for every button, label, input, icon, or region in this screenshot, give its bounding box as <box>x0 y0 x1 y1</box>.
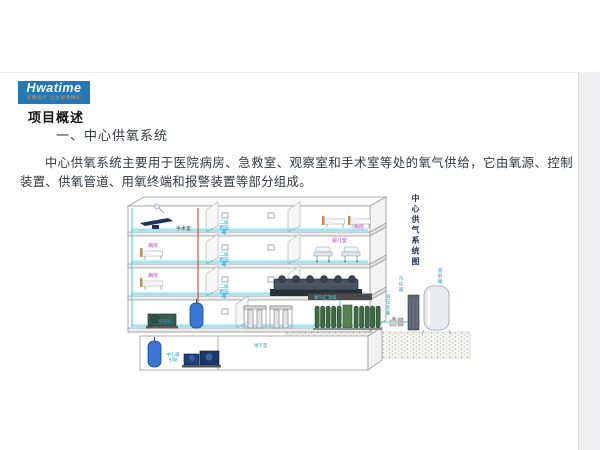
app-background-strip <box>578 72 600 450</box>
logo-tagline: 华腾医疗 让生命更精彩 <box>20 95 88 102</box>
document-page: Hwatime 华腾医疗 让生命更精彩 项目概述 一、中心供氧系统 中心供氧系统… <box>0 0 600 450</box>
air-compressor-icon <box>146 314 178 329</box>
subsection-title: 一、中心供氧系统 <box>56 125 168 144</box>
section-heading: 项目概述 <box>28 107 84 126</box>
hwatime-logo: Hwatime 华腾医疗 让生命更精彩 <box>18 81 90 104</box>
vaporizer-icon <box>408 295 419 330</box>
body-paragraph: 中心供氧系统主要用于医院病房、急救室、观察室和手术室等处的氧气供给，它由氧源、控… <box>20 154 573 192</box>
oxygen-system-diagram: 中心供气系统图 手术室 病房 病房 病房 婴儿室 二级稳压箱 二级稳压箱 二级稳… <box>118 192 476 380</box>
vacuum-unit-icon <box>270 276 362 296</box>
logo-brand-text: Hwatime <box>18 81 90 95</box>
oxygen-manifold-icon <box>308 294 382 331</box>
liquid-oxygen-tank-icon <box>422 286 451 334</box>
diagram-drawing <box>118 192 476 380</box>
pressure-reducer-icon <box>390 317 403 326</box>
page-top-rule <box>0 72 578 73</box>
